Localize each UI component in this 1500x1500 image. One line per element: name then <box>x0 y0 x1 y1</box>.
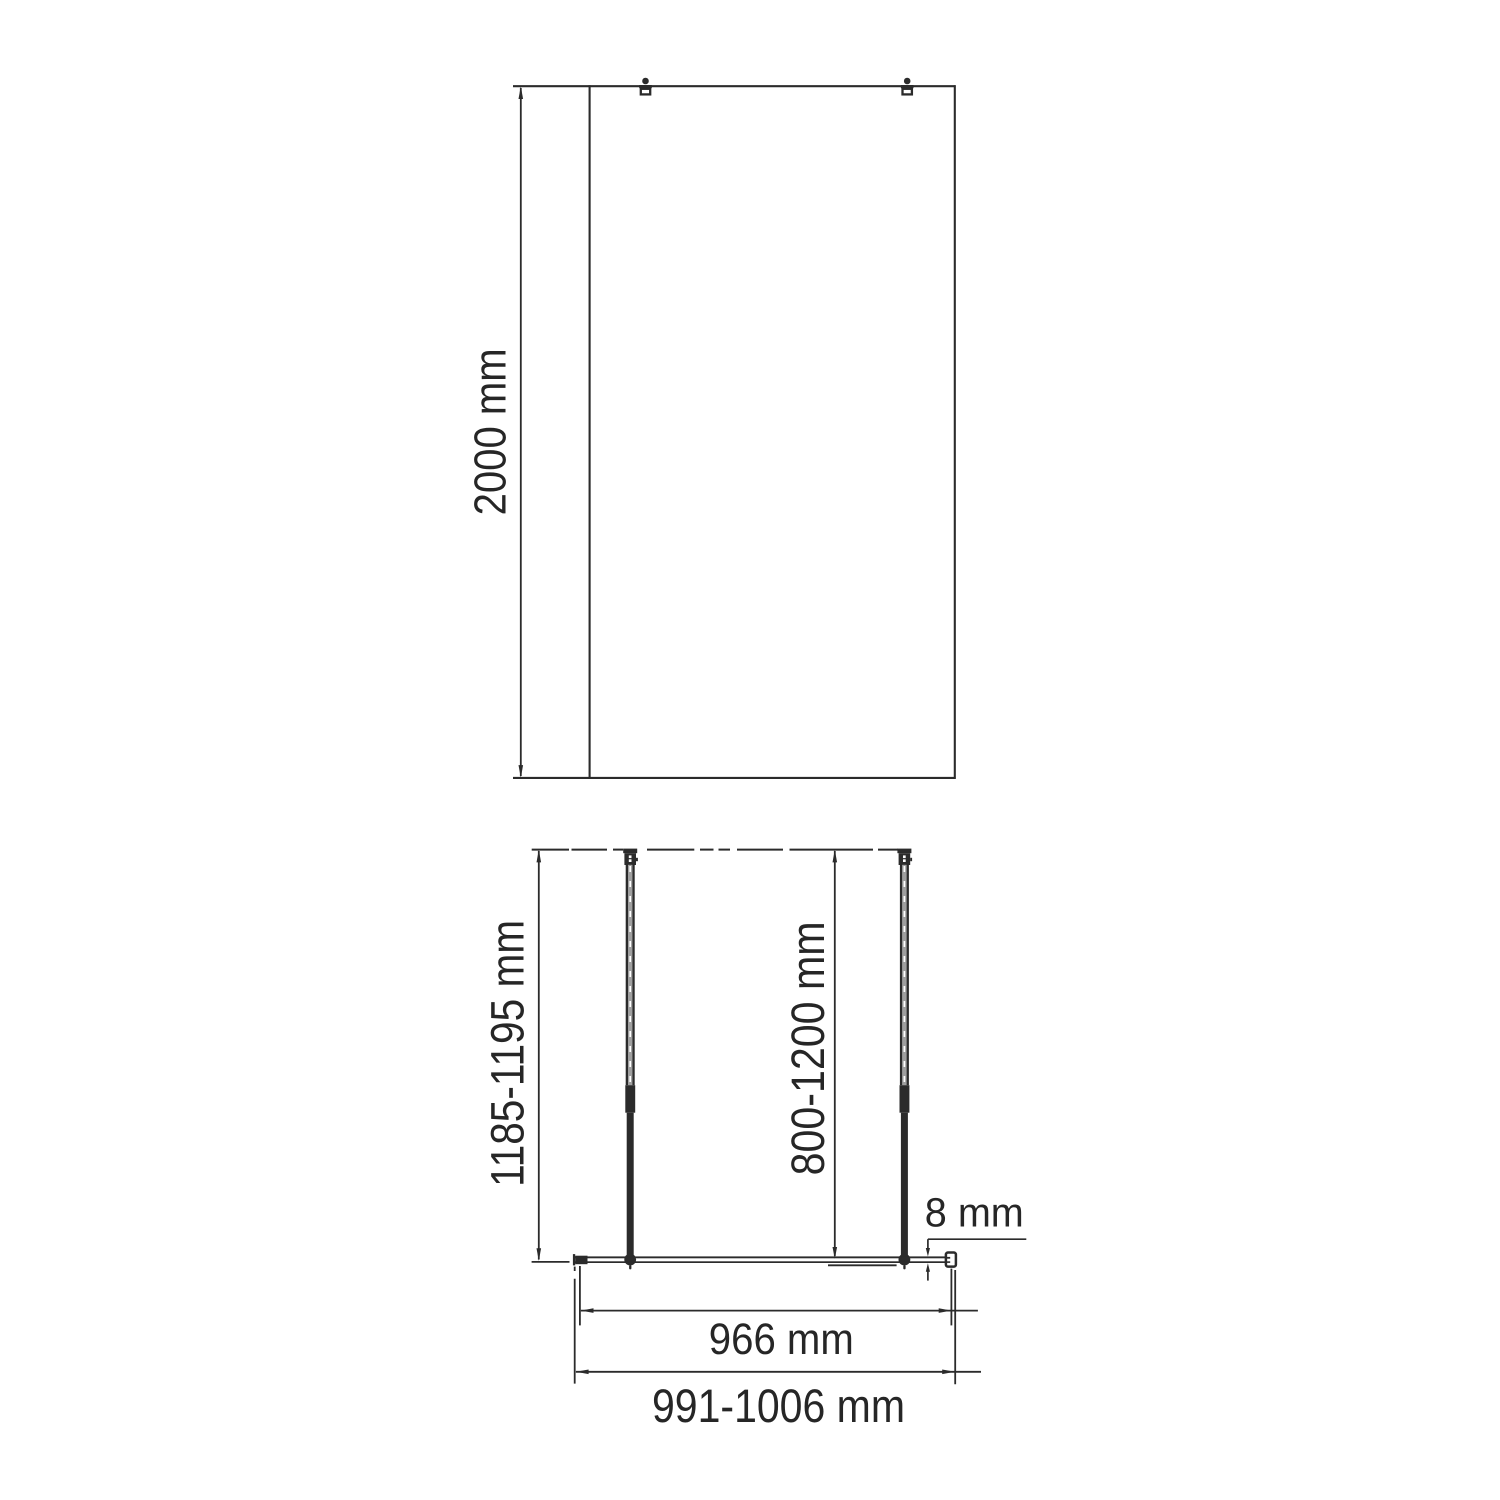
svg-text:966 mm: 966 mm <box>709 1315 854 1364</box>
svg-text:800-1200 mm: 800-1200 mm <box>781 921 834 1175</box>
svg-text:991-1006 mm: 991-1006 mm <box>652 1379 905 1432</box>
svg-text:2000 mm: 2000 mm <box>465 348 516 515</box>
svg-text:1185-1195 mm: 1185-1195 mm <box>481 920 534 1187</box>
svg-text:8 mm: 8 mm <box>925 1190 1024 1236</box>
